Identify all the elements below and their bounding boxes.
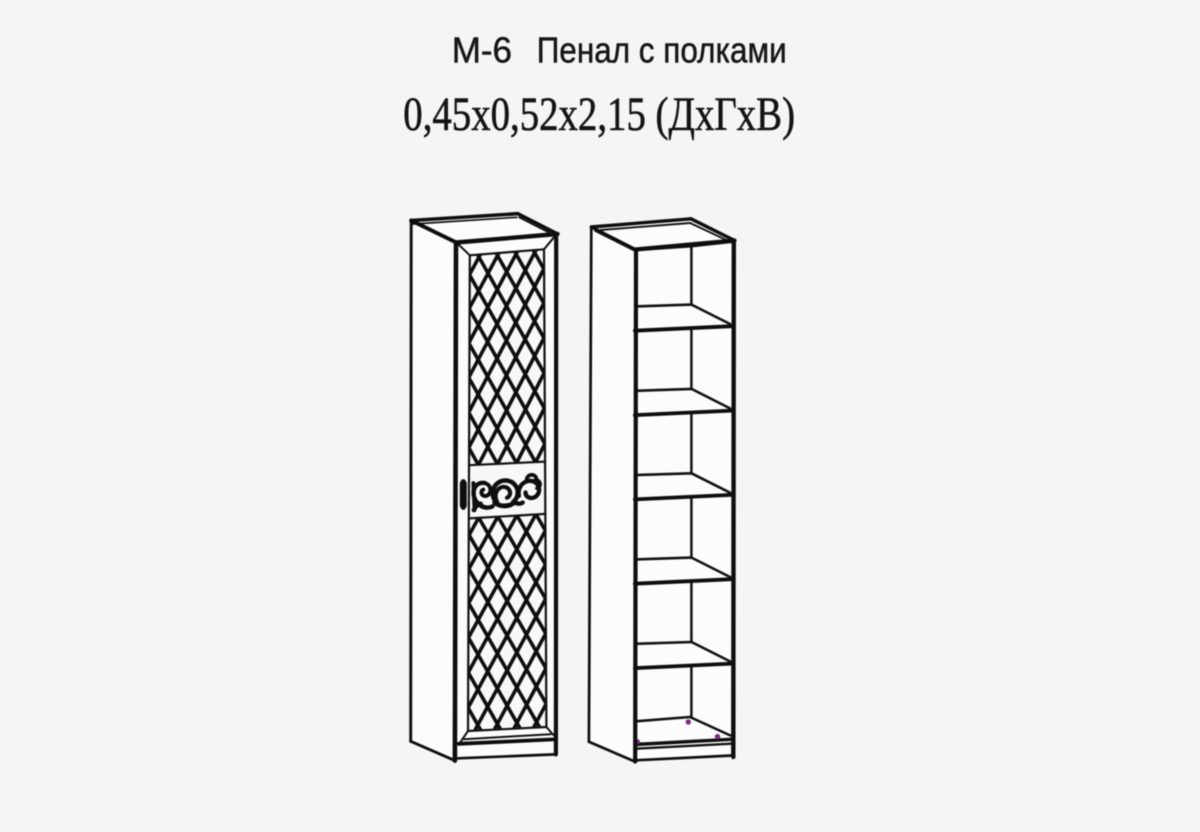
svg-text:0,45x0,52x2,15 (ДхГхВ): 0,45x0,52x2,15 (ДхГхВ)	[403, 88, 795, 141]
svg-text:М-6: М-6	[452, 30, 512, 71]
svg-text:Пенал с полками: Пенал с полками	[537, 30, 787, 71]
